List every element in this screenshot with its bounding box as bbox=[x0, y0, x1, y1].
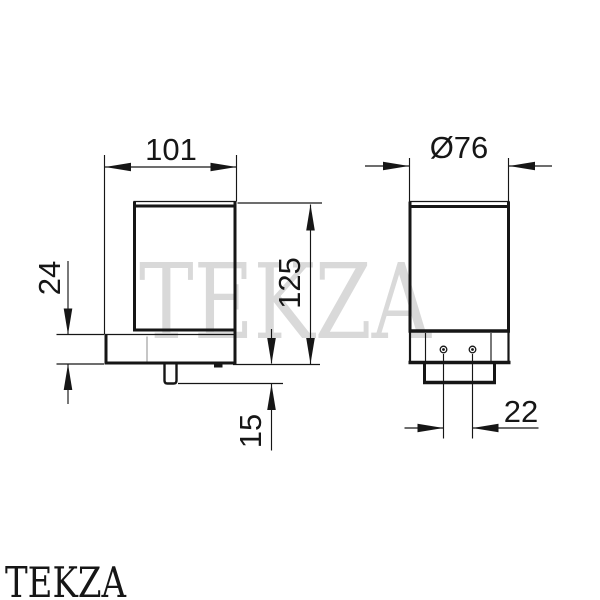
dim-label-hole-spacing: 22 bbox=[504, 394, 538, 429]
screw-hole-right-center bbox=[471, 348, 474, 351]
arrowhead-up bbox=[267, 384, 276, 410]
dim-label-total-height: 125 bbox=[272, 257, 307, 309]
dim-diameter: Ø76 bbox=[365, 130, 552, 201]
arrowhead-left bbox=[105, 163, 131, 172]
arrowhead-up bbox=[306, 205, 315, 231]
arrowhead-right bbox=[211, 163, 237, 172]
dim-bracket-height: 24 bbox=[32, 261, 104, 404]
arrowhead-right bbox=[418, 424, 444, 433]
dim-label-spout-length: 15 bbox=[233, 414, 268, 448]
arrowhead-left bbox=[509, 162, 535, 171]
arrowhead-up bbox=[64, 364, 73, 390]
drawing-canvas: TEKZA 101 24 bbox=[0, 0, 600, 600]
dim-label-bracket-height: 24 bbox=[32, 261, 67, 295]
arrowhead-down bbox=[64, 309, 73, 335]
screw-hole-left-center bbox=[442, 348, 445, 351]
arrowhead-right bbox=[383, 162, 409, 171]
technical-drawing-page: TEKZA 101 24 bbox=[0, 0, 600, 600]
dim-label-side-width: 101 bbox=[145, 132, 197, 167]
dim-label-diameter: Ø76 bbox=[430, 130, 489, 165]
side-spout-outline bbox=[165, 364, 177, 384]
arrowhead-left bbox=[473, 424, 499, 433]
brand-logo-text: TEKZA bbox=[5, 558, 127, 600]
